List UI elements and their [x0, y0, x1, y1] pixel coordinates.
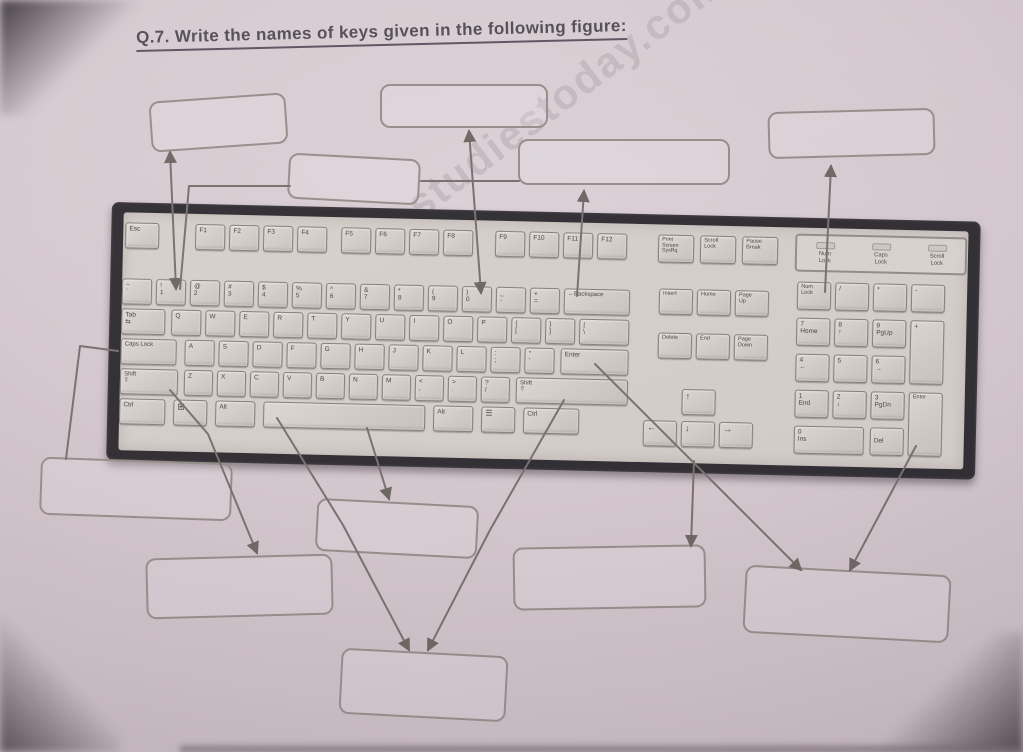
answer-box-6: [39, 457, 233, 522]
worksheet-photo: Q.7. Write the names of keys given in th…: [0, 0, 1023, 752]
answer-box-10: [742, 565, 951, 644]
answer-box-11: [338, 648, 508, 723]
photo-edge-shadow: [180, 743, 1023, 752]
answer-box-2: [380, 84, 548, 128]
answer-box-7: [315, 498, 480, 559]
answer-box-1: [148, 92, 288, 152]
answer-box-3: [287, 153, 421, 206]
answer-box-9: [512, 544, 706, 610]
answer-box-5: [767, 108, 935, 159]
answer-box-4: [518, 139, 730, 185]
annotation-layer: [0, 0, 1023, 752]
answer-box-8: [145, 554, 334, 620]
